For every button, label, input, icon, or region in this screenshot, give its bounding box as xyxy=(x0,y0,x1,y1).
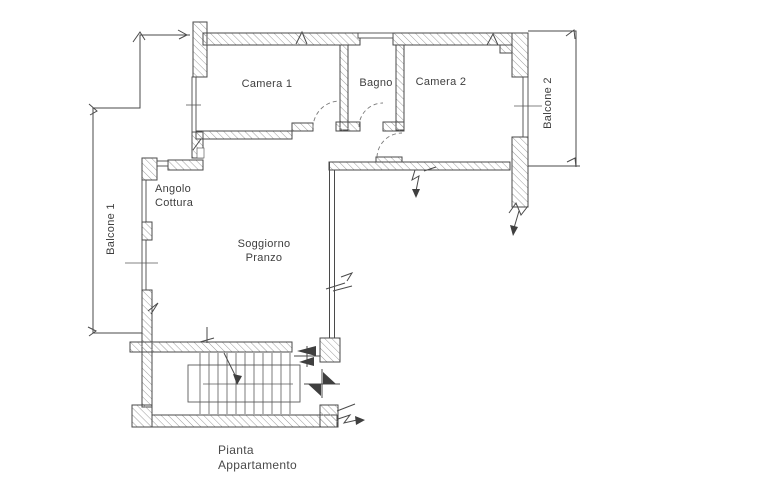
door-symbol-triangle xyxy=(308,384,321,396)
wall-top-left-segment xyxy=(203,33,360,45)
window-soggiorno-west xyxy=(142,240,146,290)
corner-tick-icon xyxy=(88,327,96,336)
wall-bagno-south-left xyxy=(336,122,360,131)
break-arrowhead xyxy=(510,225,518,236)
soggiorno-label-line1: Soggiorno xyxy=(238,238,291,250)
door-arc-bagno xyxy=(359,103,383,127)
break-zigzag xyxy=(338,415,357,423)
break-arrow-camera2-wall-icon xyxy=(509,203,528,236)
wall-stair-east-lower xyxy=(320,405,338,427)
wall-bagno-south-right xyxy=(383,122,404,131)
angolo-cottura-label-line2: Cottura xyxy=(155,197,194,209)
wall-corner-step-ne xyxy=(500,45,512,53)
break-arrowhead xyxy=(355,416,365,425)
angolo-cottura-label-line1: Angolo xyxy=(155,183,191,195)
wall-stair-corner-sw xyxy=(132,405,152,427)
wall-bagno-west xyxy=(340,45,348,130)
floor-plan-page: Camera 1 Bagno Camera 2 Balcone 1 Balcon… xyxy=(0,0,764,492)
wall-west-bump xyxy=(142,222,152,240)
stair-landing-outline xyxy=(188,365,300,402)
wall-corridor-south xyxy=(329,162,510,170)
wall-camera1-south-step xyxy=(292,123,313,131)
window-west-upper xyxy=(192,77,196,132)
wall-stair-south xyxy=(152,415,337,427)
window-camera2-east xyxy=(523,77,528,137)
plan-title-line1: Pianta xyxy=(218,443,254,457)
break-marks xyxy=(148,32,528,425)
break-slash xyxy=(333,286,352,291)
bagno-label: Bagno xyxy=(359,77,392,89)
window-cottura-top xyxy=(157,161,168,166)
camera1-label: Camera 1 xyxy=(242,78,293,90)
break-arrow-stair-wall-icon xyxy=(337,404,365,425)
break-arrowhead xyxy=(412,189,420,198)
wall-pillar-top-left xyxy=(193,22,207,77)
soggiorno-label-line2: Pranzo xyxy=(246,252,283,264)
wall-top-right-segment xyxy=(393,33,512,45)
wall-cottura-corner xyxy=(142,158,157,180)
balcone2-label: Balcone 2 xyxy=(542,77,554,129)
wall-camera1-south xyxy=(196,131,292,139)
wall-door-threshold xyxy=(376,157,402,162)
stair-treads xyxy=(200,353,290,414)
wall-soggiorno-south xyxy=(130,342,292,352)
break-zigzag xyxy=(412,170,419,191)
balcone1-label: Balcone 1 xyxy=(105,203,117,255)
window-cottura xyxy=(142,180,146,222)
window-above-bagno xyxy=(358,33,393,38)
stair-direction-arrowhead-icon xyxy=(233,374,242,385)
break-slash xyxy=(337,404,355,411)
wall-bagno-east xyxy=(396,45,404,130)
wall-entry-block xyxy=(320,338,340,362)
break-line xyxy=(514,211,519,228)
camera2-label: Camera 2 xyxy=(416,76,467,88)
plan-title-line2: Appartamento xyxy=(218,458,297,472)
main-entrance-door-icon xyxy=(294,346,320,367)
stairwell-door-icon xyxy=(304,369,340,398)
wall-cottura-top xyxy=(168,160,203,170)
wall-camera2-east-upper xyxy=(512,33,528,77)
wall-notch xyxy=(197,148,204,158)
corner-tick-icon xyxy=(133,32,145,42)
staircase xyxy=(188,353,300,414)
soggiorno-east-wall xyxy=(330,162,335,338)
wall-stair-west xyxy=(142,352,152,407)
break-mark-south-wall-icon xyxy=(200,327,214,343)
door-symbol-triangle xyxy=(323,372,336,384)
break-arrow-below-corridor-icon xyxy=(412,167,436,198)
wall-camera2-east-lower xyxy=(512,137,528,207)
break-arrowhead xyxy=(341,273,352,281)
floor-plan-svg: Camera 1 Bagno Camera 2 Balcone 1 Balcon… xyxy=(0,0,764,492)
door-arc-corridor xyxy=(377,133,402,157)
